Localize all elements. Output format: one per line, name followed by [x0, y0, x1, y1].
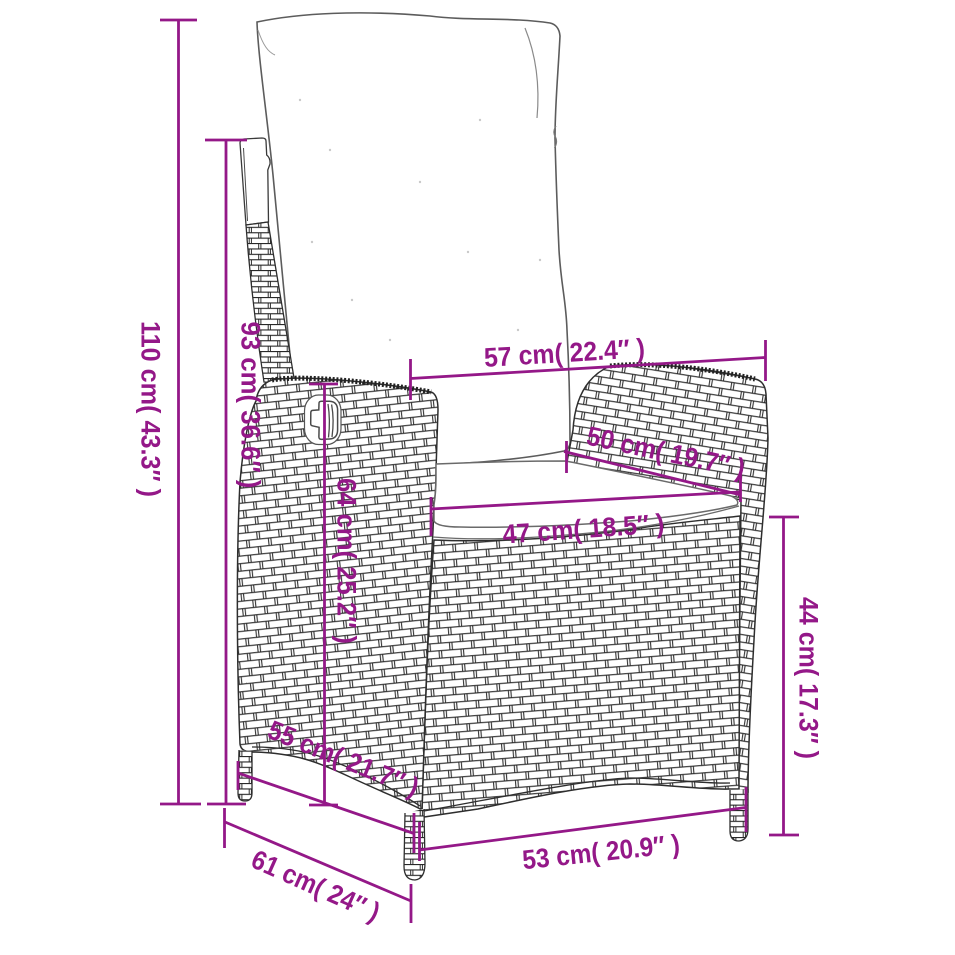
- svg-text:110 cm( 43.3″ ): 110 cm( 43.3″ ): [136, 321, 166, 497]
- svg-text:64 cm( 25.2″ ): 64 cm( 25.2″ ): [332, 478, 362, 644]
- svg-text:93 cm( 36.6″ ): 93 cm( 36.6″ ): [236, 322, 266, 489]
- svg-text:44 cm( 17.3″ ): 44 cm( 17.3″ ): [794, 597, 824, 759]
